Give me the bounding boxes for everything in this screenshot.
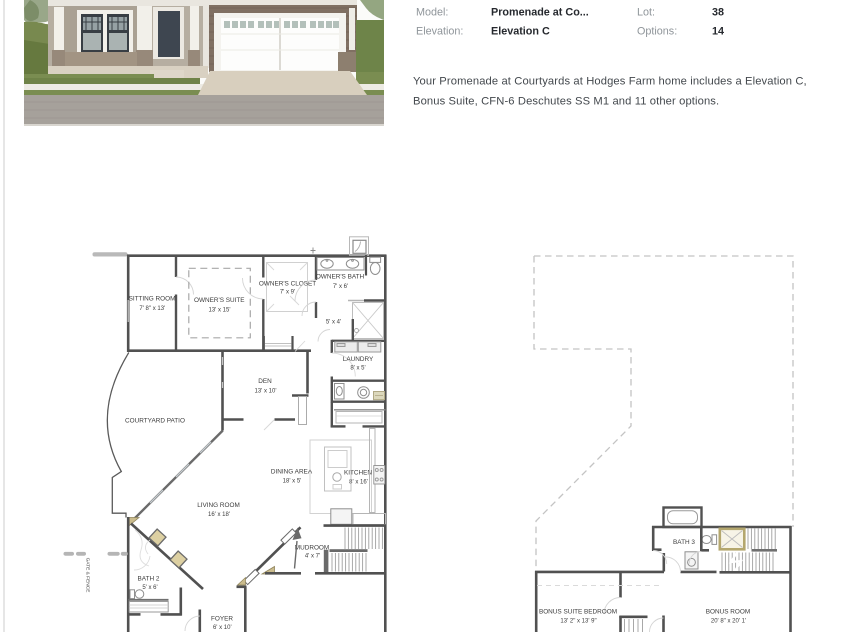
svg-text:13' x 15': 13' x 15'	[209, 308, 231, 314]
svg-text:BONUS SUITE BEDROOM: BONUS SUITE BEDROOM	[539, 609, 617, 616]
svg-text:13' x 10': 13' x 10'	[255, 389, 277, 395]
svg-text:Model:: Model:	[416, 7, 448, 19]
svg-text:BATH 3: BATH 3	[673, 539, 695, 546]
svg-text:Bonus Suite, CFN-6 Deschutes S: Bonus Suite, CFN-6 Deschutes SS M1 and 1…	[413, 96, 719, 108]
svg-text:Elevation C: Elevation C	[491, 26, 550, 38]
svg-text:COURTYARD PATIO: COURTYARD PATIO	[125, 418, 185, 425]
svg-text:4' x 7': 4' x 7'	[305, 554, 320, 560]
svg-text:7' x 9': 7' x 9'	[280, 290, 295, 296]
svg-text:16' x 18': 16' x 18'	[208, 512, 230, 518]
svg-text:8' x 5': 8' x 5'	[350, 366, 365, 372]
svg-text:7' x 6': 7' x 6'	[333, 284, 348, 290]
svg-text:Elevation:: Elevation:	[416, 26, 463, 38]
svg-text:Promenade at Co...: Promenade at Co...	[491, 7, 589, 19]
svg-text:OWNER'S SUITE: OWNER'S SUITE	[194, 297, 245, 304]
svg-text:SITTING ROOM: SITTING ROOM	[129, 296, 176, 303]
svg-text:13' 2" x 13' 9": 13' 2" x 13' 9"	[560, 619, 596, 625]
svg-text:GATE & FENCE: GATE & FENCE	[85, 558, 91, 593]
svg-text:BATH 2: BATH 2	[138, 576, 160, 583]
svg-text:18' x 5': 18' x 5'	[283, 479, 302, 485]
svg-text:Lot:: Lot:	[637, 7, 655, 19]
svg-text:5' x 4': 5' x 4'	[326, 320, 341, 326]
svg-text:FOYER: FOYER	[211, 616, 233, 623]
svg-text:14: 14	[712, 26, 724, 38]
svg-text:DINING AREA: DINING AREA	[271, 469, 313, 476]
svg-text:6' x 10': 6' x 10'	[213, 625, 232, 631]
svg-text:7' 8" x 13': 7' 8" x 13'	[139, 306, 165, 312]
svg-text:Options:: Options:	[637, 26, 677, 38]
svg-text:LAUNDRY: LAUNDRY	[343, 356, 374, 363]
svg-text:Your Promenade at Courtyards a: Your Promenade at Courtyards at Hodges F…	[413, 76, 807, 88]
svg-text:8' x 16': 8' x 16'	[349, 480, 368, 486]
svg-text:5' x 6': 5' x 6'	[142, 585, 157, 591]
svg-text:OWNER'S BATH: OWNER'S BATH	[316, 274, 365, 281]
svg-text:DEN: DEN	[258, 378, 272, 385]
svg-text:BONUS ROOM: BONUS ROOM	[706, 609, 750, 616]
svg-text:KITCHEN: KITCHEN	[344, 470, 372, 477]
svg-text:38: 38	[712, 7, 724, 19]
svg-text:LIVING ROOM: LIVING ROOM	[197, 502, 240, 509]
svg-text:20' 8" x 20' 1': 20' 8" x 20' 1'	[711, 619, 746, 625]
